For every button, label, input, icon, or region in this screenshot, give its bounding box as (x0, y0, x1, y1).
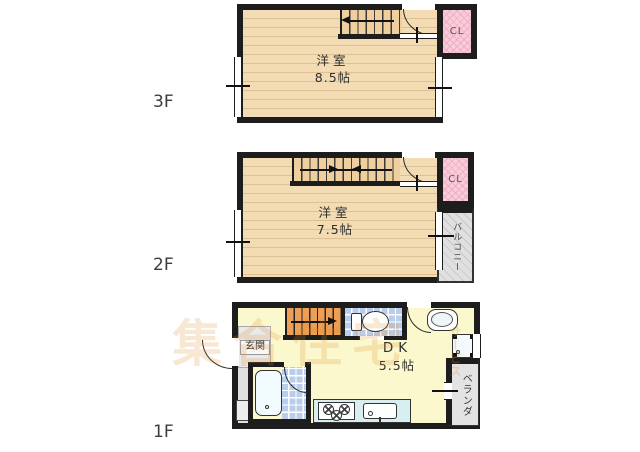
floor-label-1f: 1F (153, 422, 193, 443)
balcony-2f-label: バルコニー (450, 222, 461, 272)
window-3f-inner-tick (416, 27, 418, 43)
entrance-door-arc (202, 340, 232, 369)
room-1f-name: DK (355, 340, 440, 357)
window-2f-right-tick (428, 235, 454, 237)
stairs-1f-arrow-line (291, 321, 329, 323)
window-2f-left (234, 210, 242, 277)
stairs-2f-edge (290, 181, 402, 186)
floorplan-canvas: 3F CL 洋室 8.5帖 2F CL バルコニー 洋室 7.5帖 (0, 0, 640, 452)
floor-label-2f: 2F (153, 255, 193, 276)
bathtub-icon (255, 370, 282, 416)
window-3f-right-tick (428, 87, 452, 89)
toilet-tank-icon (351, 313, 362, 331)
stairs-2f-arrow-line (300, 169, 392, 171)
room-2f-name: 洋室 (285, 205, 385, 221)
closet-2f-label: CL (448, 174, 463, 185)
washer-drain-icon (456, 350, 460, 354)
sink-drain-icon (379, 417, 381, 423)
room-1f-size: 5.5帖 (352, 358, 442, 374)
entrance-1f-label: 玄関 (240, 340, 270, 355)
stove-icon (318, 402, 355, 420)
sink-faucet-icon (368, 411, 373, 416)
window-1f-right (472, 334, 481, 358)
closet-3f: CL (437, 4, 477, 59)
veranda-1f-label: ベランダ (459, 373, 472, 417)
stairs-3f-arrow-line (348, 20, 394, 22)
stairs-1f-edge (283, 335, 343, 340)
stairs-2f-arrow-up-icon (329, 165, 338, 173)
kitchen-counter-1f (313, 399, 411, 423)
window-3f-left-tick (226, 85, 250, 87)
stairs-3f-edge (338, 34, 402, 39)
window-2f-inner-tick (416, 175, 418, 191)
window-3f-left (234, 57, 242, 117)
kitchen-sink-icon (363, 403, 397, 419)
room-2f-size: 7.5帖 (285, 222, 385, 238)
window-2f-left-tick (226, 241, 250, 243)
closet-3f-label: CL (450, 26, 465, 37)
closet-2f: CL (437, 152, 474, 207)
toilet-wall-right (402, 308, 407, 340)
stairs-3f-arrow-icon (341, 16, 350, 24)
entrance-door-gap (231, 338, 239, 366)
window-2f-inner (400, 181, 437, 187)
window-2f-right (435, 212, 443, 270)
veranda-window-tick (432, 390, 458, 392)
window-3f-inner (400, 33, 437, 39)
bathtub-drain-icon (265, 405, 269, 409)
toilet-bowl-icon (362, 311, 389, 332)
stove-burner-icon (331, 410, 342, 421)
room-3f-size: 8.5帖 (283, 70, 383, 86)
washer-pan-corner (453, 335, 457, 339)
room-3f-name: 洋室 (283, 53, 383, 69)
stairs-2f-arrow-down-icon (352, 165, 361, 173)
washbasin-bowl-icon (431, 312, 453, 327)
stairs-1f-arrow-icon (328, 317, 337, 325)
floor-label-3f: 3F (153, 92, 193, 113)
